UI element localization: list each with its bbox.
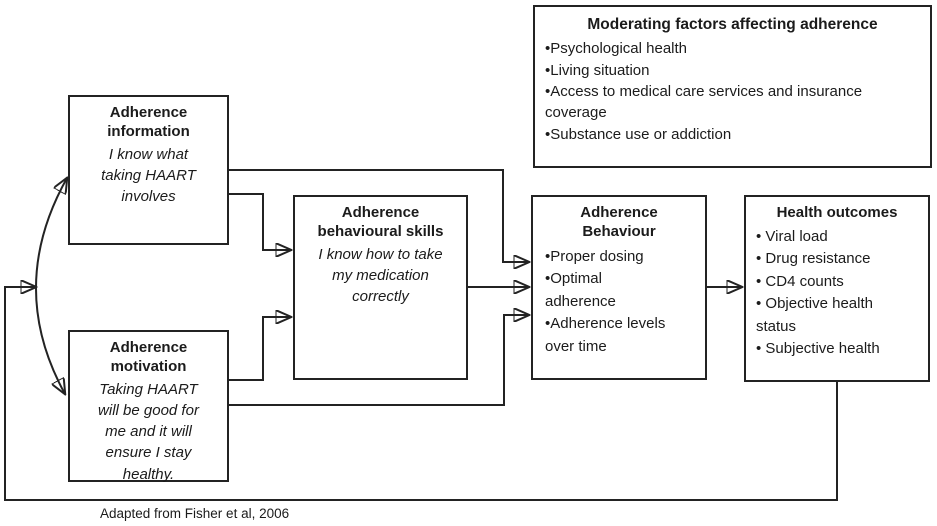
adherence-motivation-title: Adherence motivation (70, 339, 227, 377)
bullet-item: • Subjective health (756, 338, 908, 361)
adherence-information-title: Adherence information (70, 104, 227, 142)
bullet-item: • Objective health status (756, 293, 908, 338)
diagram-canvas: Moderating factors affecting adherence •… (0, 0, 937, 526)
adherence-behavioural-skills-body: I know how to take my medication correct… (315, 244, 447, 308)
moderating-factors-box: Moderating factors affecting adherence •… (533, 5, 932, 168)
connector-information-to-skills (228, 194, 291, 250)
moderating-factors-bullet-list: •Psychological health•Living situation•A… (535, 36, 930, 144)
adherence-motivation-body: Taking HAART will be good for me and it … (93, 379, 205, 485)
health-outcomes-box: Health outcomes • Viral load• Drug resis… (744, 195, 930, 382)
moderating-factors-title: Moderating factors affecting adherence (535, 15, 930, 34)
bullet-item: • Viral load (756, 226, 908, 249)
connector-information-motivation-bidirectional-arc (36, 178, 67, 394)
adherence-behaviour-box: Adherence Behaviour •Proper dosing•Optim… (531, 195, 707, 380)
source-caption: Adapted from Fisher et al, 2006 (100, 506, 289, 521)
bullet-item: •Optimal adherence (545, 268, 673, 313)
bullet-item: • Drug resistance (756, 248, 908, 271)
adherence-behaviour-title: Adherence Behaviour (559, 204, 679, 242)
bullet-item: •Substance use or addiction (545, 124, 920, 145)
bullet-item: •Access to medical care services and ins… (545, 81, 920, 124)
adherence-motivation-box: Adherence motivation Taking HAART will b… (68, 330, 229, 482)
health-outcomes-title: Health outcomes (746, 204, 928, 223)
adherence-behavioural-skills-title: Adherence behavioural skills (306, 204, 456, 242)
adherence-behavioural-skills-box: Adherence behavioural skills I know how … (293, 195, 468, 380)
bullet-item: • CD4 counts (756, 271, 908, 294)
health-outcomes-bullet-list: • Viral load• Drug resistance• CD4 count… (746, 225, 928, 361)
bullet-item: •Living situation (545, 60, 920, 81)
connector-motivation-to-skills (227, 317, 291, 380)
bullet-item: •Proper dosing (545, 246, 673, 269)
adherence-behaviour-bullet-list: •Proper dosing•Optimal adherence•Adheren… (533, 244, 705, 359)
bullet-item: •Adherence levels over time (545, 313, 673, 358)
adherence-information-body: I know what taking HAART involves (95, 144, 203, 208)
bullet-item: •Psychological health (545, 38, 920, 59)
adherence-information-box: Adherence information I know what taking… (68, 95, 229, 245)
